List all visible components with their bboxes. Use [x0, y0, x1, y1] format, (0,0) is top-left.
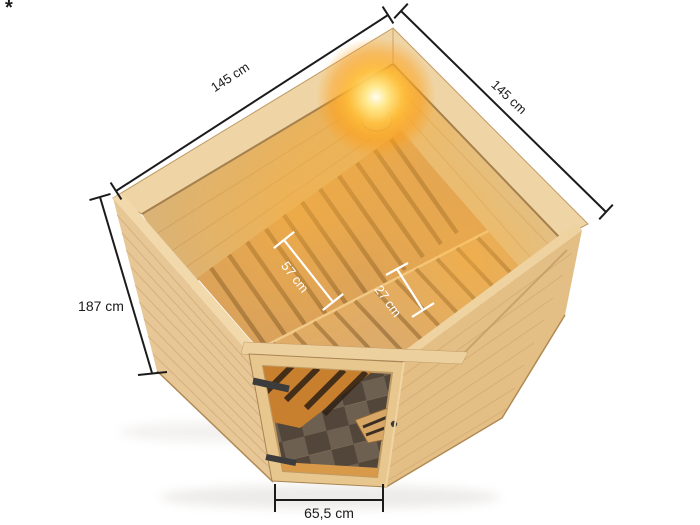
sauna-illustration — [0, 0, 700, 525]
light-glow — [316, 37, 436, 157]
dimension-label-height: 187 cm — [78, 298, 124, 314]
product-dimension-diagram: * 145 cm 145 cm 187 cm 65,5 cm 57 cm 27 … — [0, 0, 700, 525]
door — [249, 354, 404, 487]
dimension-label-door-width: 65,5 cm — [304, 505, 354, 521]
footnote-asterisk: * — [5, 0, 13, 20]
